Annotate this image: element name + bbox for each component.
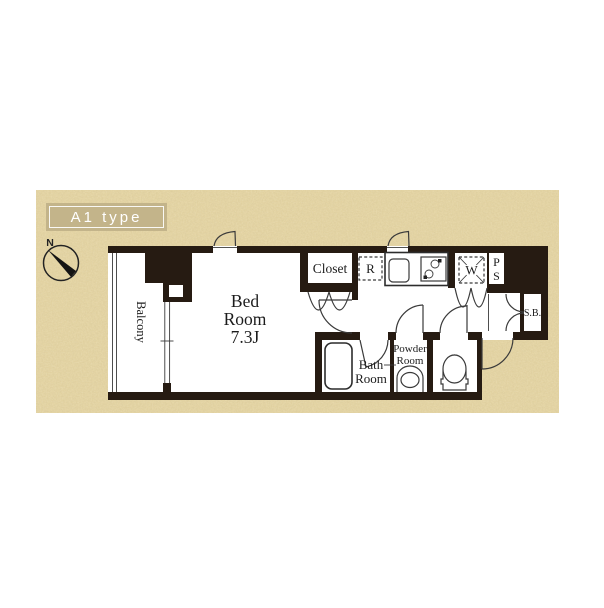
kitchen-counter xyxy=(385,253,448,286)
floor-plan-page: N xyxy=(0,0,604,608)
closet-label: Closet xyxy=(313,261,348,276)
floor-plan: N xyxy=(0,0,604,608)
powder-sink-icon xyxy=(397,366,423,392)
stove-icon xyxy=(421,257,446,281)
svg-text:Powder: Powder xyxy=(393,343,427,355)
svg-text:Bath: Bath xyxy=(359,357,384,372)
plan-type-badge: A1 type xyxy=(46,203,167,231)
shoe-box-label: S.B. xyxy=(524,308,541,319)
washer-label: W xyxy=(465,263,478,278)
svg-text:Room: Room xyxy=(355,371,387,386)
powder-label: Powder Room xyxy=(393,343,427,367)
pipe-space-label-p: P xyxy=(493,255,500,269)
svg-text:Room: Room xyxy=(224,309,267,329)
kitchen-sink-icon xyxy=(389,259,409,282)
pipe-space-label-s: S xyxy=(493,269,500,283)
svg-text:Room: Room xyxy=(397,355,424,367)
plan-type-badge-border: A1 type xyxy=(49,206,164,228)
balcony-label: Balcony xyxy=(134,301,148,343)
pipe-space-box: P S xyxy=(489,253,504,284)
refrigerator-label: R xyxy=(366,261,375,276)
refrigerator-box: R xyxy=(359,257,382,280)
washer-box: W xyxy=(459,257,484,283)
svg-text:7.3J: 7.3J xyxy=(231,327,260,347)
shoe-box: S.B. xyxy=(524,294,541,331)
toilet-icon xyxy=(441,355,468,390)
svg-text:Bed: Bed xyxy=(231,291,259,311)
compass-north-label: N xyxy=(46,237,54,249)
plan-type-text: A1 type xyxy=(71,209,143,226)
bathtub-icon xyxy=(325,343,352,389)
